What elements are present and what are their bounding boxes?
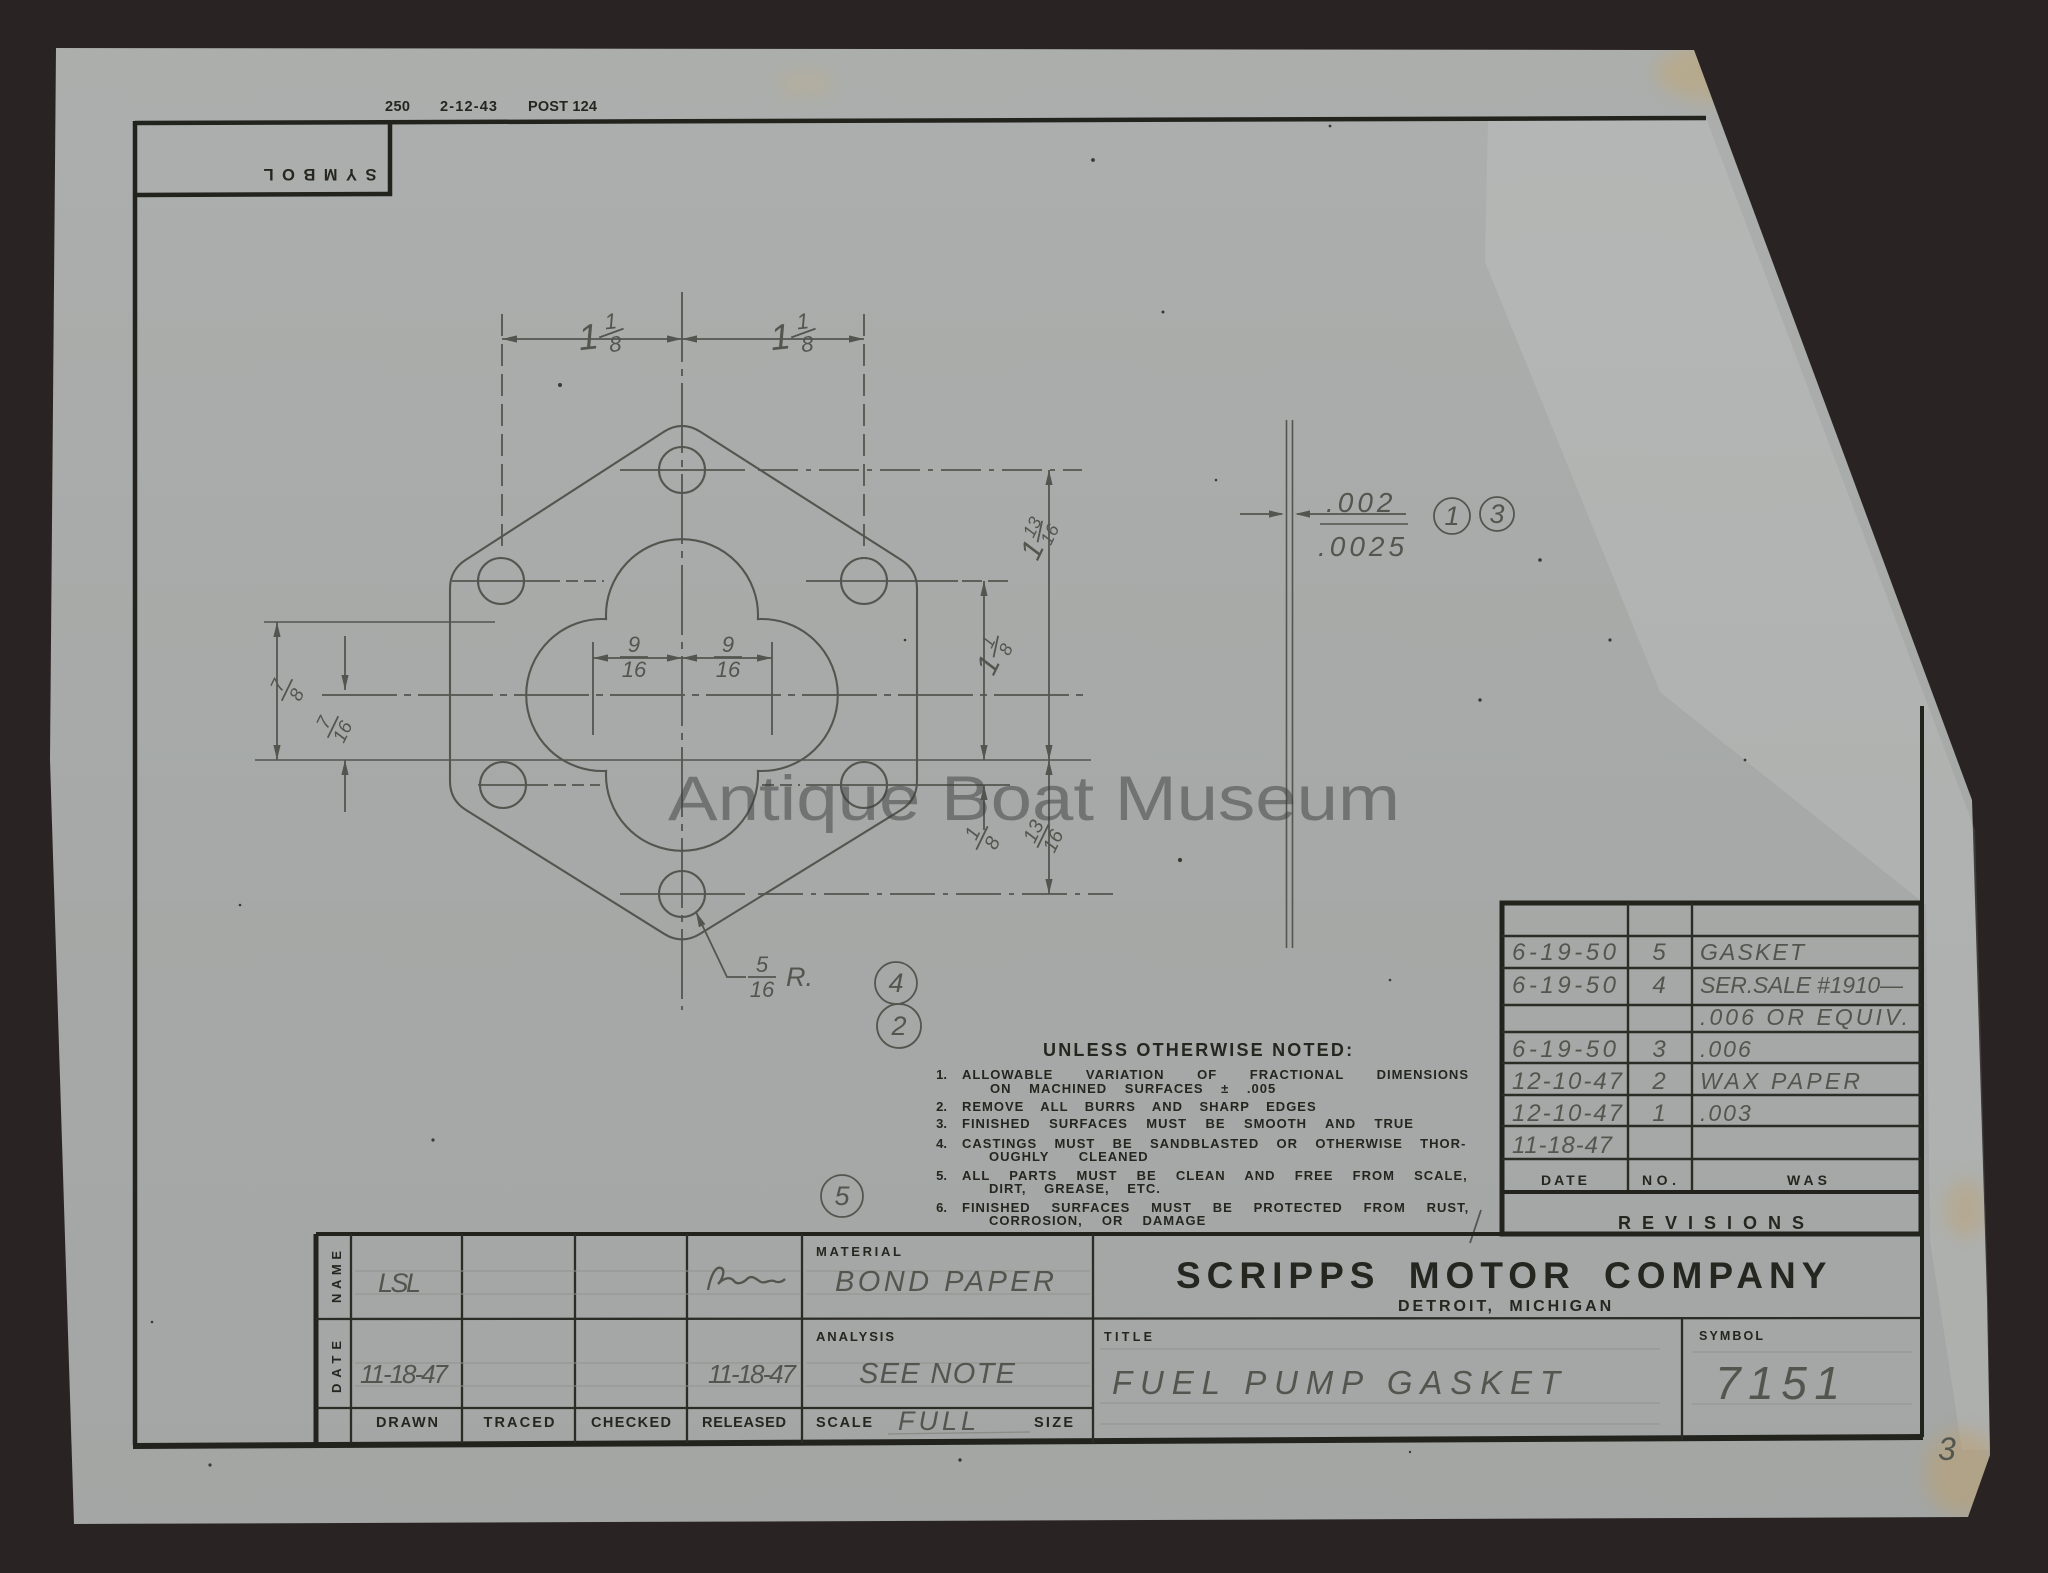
- svg-text:1: 1: [1652, 1100, 1665, 1127]
- svg-text:16: 16: [750, 977, 775, 1002]
- svg-text:.006 OR EQUIV.: .006 OR EQUIV.: [1700, 1004, 1908, 1030]
- svg-text:NAME: NAME: [329, 1251, 344, 1303]
- svg-text:4.: 4.: [936, 1136, 947, 1151]
- svg-text:7151: 7151: [1715, 1357, 1840, 1409]
- svg-text:SER.SALE #1910—: SER.SALE #1910—: [1700, 972, 1904, 998]
- svg-text:FULL: FULL: [898, 1406, 976, 1436]
- svg-text:2-12-43: 2-12-43: [440, 99, 497, 115]
- svg-text:1: 1: [768, 315, 792, 358]
- svg-text:11-18-47: 11-18-47: [1512, 1132, 1614, 1159]
- svg-text:SCALE: SCALE: [816, 1415, 872, 1431]
- svg-text:NO.: NO.: [1642, 1172, 1676, 1188]
- svg-text:DATE: DATE: [1541, 1172, 1587, 1188]
- svg-text:DRAWN: DRAWN: [376, 1415, 438, 1431]
- svg-text:FINISHED SURFACES MUST BE SMOO: FINISHED SURFACES MUST BE SMOOTH AND TRU…: [962, 1116, 1414, 1131]
- svg-text:9: 9: [628, 632, 640, 657]
- svg-text:3: 3: [1938, 1431, 1956, 1467]
- svg-text:2: 2: [1651, 1068, 1665, 1095]
- svg-text:REVISIONS: REVISIONS: [1618, 1213, 1815, 1233]
- svg-text:16: 16: [622, 657, 647, 682]
- svg-text:WAS: WAS: [1787, 1172, 1827, 1188]
- svg-text:5: 5: [756, 952, 769, 977]
- svg-text:ALLOWABLE VARIATION OF FRACTIO: ALLOWABLE VARIATION OF FRACTIONAL DIMENS…: [962, 1067, 1469, 1082]
- svg-text:.006: .006: [1700, 1036, 1753, 1062]
- svg-text:POST 124: POST 124: [528, 99, 597, 115]
- svg-text:6-19-50: 6-19-50: [1512, 939, 1617, 966]
- svg-text:WAX PAPER: WAX PAPER: [1700, 1068, 1860, 1094]
- svg-text:16: 16: [716, 657, 741, 682]
- svg-text:3: 3: [1652, 1036, 1666, 1063]
- svg-text:.003: .003: [1700, 1100, 1753, 1126]
- svg-text:TITLE: TITLE: [1104, 1330, 1152, 1344]
- svg-text:SYMBOL: SYMBOL: [264, 165, 377, 183]
- svg-text:3.: 3.: [936, 1116, 947, 1131]
- svg-text:8: 8: [980, 833, 1005, 853]
- svg-text:UNLESS OTHERWISE NOTED:: UNLESS OTHERWISE NOTED:: [1043, 1040, 1354, 1060]
- svg-text:GASKET: GASKET: [1700, 939, 1806, 965]
- svg-text:MATERIAL: MATERIAL: [816, 1244, 901, 1259]
- svg-text:BOND PAPER: BOND PAPER: [835, 1266, 1054, 1298]
- svg-text:9: 9: [722, 632, 734, 657]
- svg-text:4: 4: [1652, 972, 1665, 999]
- svg-text:5: 5: [834, 1181, 850, 1211]
- svg-text:12-10-47: 12-10-47: [1512, 1068, 1624, 1095]
- svg-text:2.: 2.: [936, 1099, 947, 1114]
- svg-text:.0025: .0025: [1318, 531, 1408, 562]
- svg-text:SEE NOTE: SEE NOTE: [859, 1358, 1016, 1390]
- svg-text:SYMBOL: SYMBOL: [1699, 1329, 1763, 1343]
- svg-text:6.: 6.: [936, 1200, 947, 1215]
- svg-text:1: 1: [576, 315, 600, 358]
- svg-text:DIRT, GREASE, ETC.: DIRT, GREASE, ETC.: [989, 1181, 1161, 1196]
- svg-text:3: 3: [1489, 499, 1504, 529]
- svg-text:1: 1: [1444, 501, 1459, 531]
- svg-text:5: 5: [1652, 939, 1666, 966]
- svg-text:LSL: LSL: [378, 1268, 421, 1298]
- svg-text:6-19-50: 6-19-50: [1512, 1036, 1617, 1063]
- svg-text:250: 250: [385, 99, 410, 115]
- svg-text:11-18-47: 11-18-47: [708, 1359, 798, 1389]
- svg-text:SIZE: SIZE: [1034, 1415, 1073, 1431]
- svg-text:8: 8: [608, 331, 624, 357]
- svg-text:12-10-47: 12-10-47: [1512, 1100, 1624, 1127]
- svg-text:8: 8: [800, 331, 816, 357]
- svg-text:11-18-47: 11-18-47: [360, 1359, 450, 1389]
- svg-text:RELEASED: RELEASED: [702, 1415, 786, 1431]
- svg-text:OUGHLY CLEANED: OUGHLY CLEANED: [989, 1149, 1149, 1164]
- svg-text:ON MACHINED SURFACES ± .005: ON MACHINED SURFACES ± .005: [990, 1081, 1276, 1096]
- svg-text:REMOVE ALL BURRS AND SHARP EDG: REMOVE ALL BURRS AND SHARP EDGES: [962, 1099, 1317, 1114]
- svg-text:R.: R.: [786, 962, 813, 992]
- svg-text:CHECKED: CHECKED: [591, 1415, 671, 1431]
- svg-text:4: 4: [888, 968, 903, 998]
- svg-text:TRACED: TRACED: [484, 1415, 555, 1431]
- svg-text:8: 8: [995, 641, 1017, 659]
- svg-text:DATE: DATE: [329, 1341, 344, 1393]
- svg-text:1.: 1.: [936, 1067, 947, 1082]
- svg-text:5.: 5.: [936, 1168, 947, 1183]
- svg-text:ANALYSIS: ANALYSIS: [816, 1329, 894, 1344]
- svg-text:CORROSION, OR DAMAGE: CORROSION, OR DAMAGE: [989, 1213, 1206, 1228]
- svg-text:2: 2: [890, 1011, 906, 1041]
- svg-text:DETROIT, MICHIGAN: DETROIT, MICHIGAN: [1398, 1298, 1614, 1315]
- svg-text:SCRIPPS MOTOR COMPANY: SCRIPPS MOTOR COMPANY: [1176, 1255, 1832, 1296]
- svg-text:FUEL PUMP GASKET: FUEL PUMP GASKET: [1112, 1364, 1563, 1401]
- svg-text:1: 1: [970, 651, 1007, 680]
- svg-text:8: 8: [286, 685, 310, 704]
- svg-text:.002: .002: [1326, 487, 1397, 518]
- svg-text:6-19-50: 6-19-50: [1512, 972, 1617, 999]
- svg-text:Antique Boat Museum: Antique Boat Museum: [668, 764, 1400, 834]
